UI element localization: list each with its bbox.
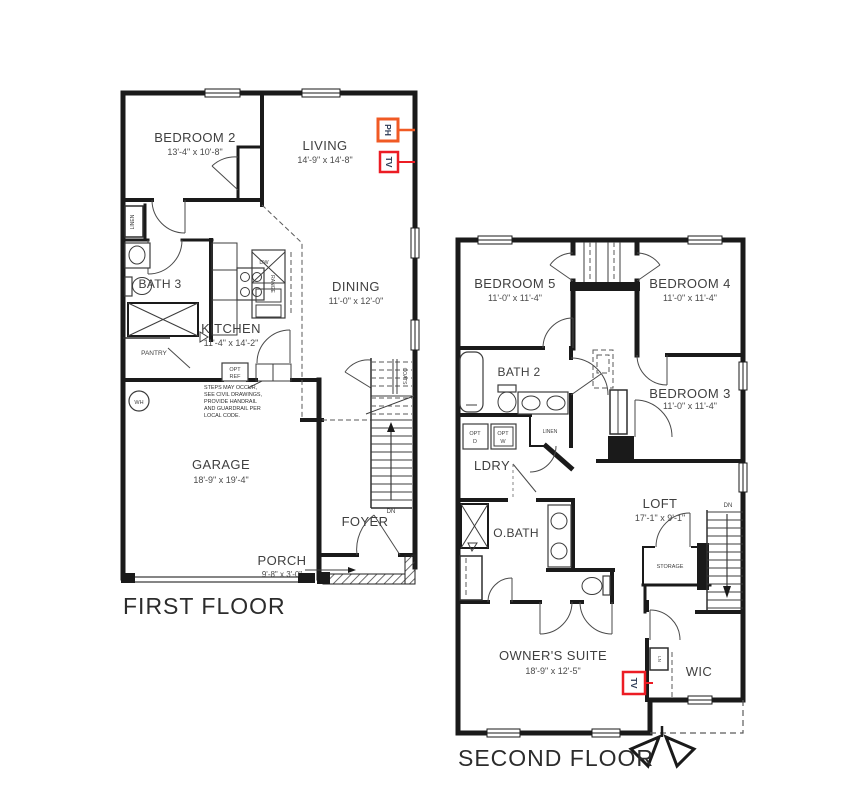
label-wh: WH: [134, 400, 143, 406]
dims-garage: 18'-9" x 19'-4": [193, 475, 248, 485]
label-opt-d-1: OPT: [469, 431, 481, 437]
label-pantry: PANTRY: [141, 350, 167, 357]
tv-marker-label-sf: TV: [629, 678, 639, 689]
first-floor-title: FIRST FLOOR: [123, 593, 286, 619]
ph-marker-label: PH: [383, 124, 393, 136]
first-floor-bath3-fixtures: [125, 243, 208, 342]
second-floor-stair-shaft: [570, 240, 640, 355]
tv-marker-first-floor: TV: [380, 152, 415, 172]
label-opt-ref-2: REF: [230, 374, 242, 380]
label-coats: COATS: [401, 368, 407, 386]
label-living: LIVING: [302, 138, 347, 153]
label-garage: GARAGE: [192, 457, 250, 472]
dims-kitchen: 11'-4" x 14'-2": [204, 338, 259, 348]
label-bedroom5: BEDROOM 5: [474, 276, 556, 291]
label-ln: LN: [657, 656, 662, 662]
label-dn-sf: DN: [724, 503, 733, 509]
label-owners-suite: OWNER'S SUITE: [499, 648, 607, 663]
dims-living: 14'-9" x 14'-8": [297, 155, 352, 165]
second-floor-doors: [488, 253, 690, 640]
label-kitchen: KITCHEN: [201, 321, 261, 336]
first-floor-kitchen-fixtures: [212, 243, 291, 388]
dims-loft: 17'-1" x 9'-1": [635, 513, 685, 523]
dims-bedroom4: 11'-0" x 11'-4": [663, 293, 717, 303]
label-loft: LOFT: [643, 496, 678, 511]
svg-text:STEPS MAY OCCUR,: STEPS MAY OCCUR,: [204, 385, 258, 391]
dims-bedroom2: 13'-4" x 10'-8": [167, 147, 222, 157]
label-range: RANGE: [269, 275, 275, 293]
dims-dining: 11'-0" x 12'-0": [329, 296, 384, 306]
tv-marker-label-ff: TV: [384, 157, 394, 168]
label-ldry: LDRY: [474, 458, 510, 473]
second-floor-plan: TV BEDROOM 5 11'-0" x 11'-4" BEDROOM 4 1…: [458, 236, 747, 771]
label-storage: STORAGE: [657, 564, 684, 570]
svg-text:LOCAL CODE.: LOCAL CODE.: [204, 413, 240, 419]
label-opt-w-2: W: [500, 439, 506, 445]
dims-bedroom5: 11'-0" x 11'-4": [488, 293, 542, 303]
label-bedroom2: BEDROOM 2: [154, 130, 236, 145]
label-obath: O.BATH: [493, 526, 539, 540]
label-opt-ref-1: OPT: [229, 367, 241, 373]
floor-plan-page: PH TV BEDROOM 2 13'-4" x 10'-8" LIVING 1…: [0, 0, 850, 811]
label-opt-d-2: D: [473, 439, 477, 445]
second-floor-bath2-fixtures: [460, 352, 568, 414]
label-bath3: BATH 3: [139, 277, 182, 291]
label-wic: WIC: [686, 664, 712, 679]
label-dw: DW: [259, 260, 269, 266]
steps-note: STEPS MAY OCCUR, SEE CIVIL DRAWINGS, PRO…: [204, 385, 263, 419]
second-floor-title: SECOND FLOOR: [458, 745, 654, 771]
first-floor-plan: PH TV BEDROOM 2 13'-4" x 10'-8" LIVING 1…: [121, 89, 419, 619]
label-dining: DINING: [332, 279, 380, 294]
dims-owners-suite: 18'-9" x 12'-5": [525, 666, 580, 676]
label-bath2: BATH 2: [498, 365, 541, 379]
label-opt-w-1: OPT: [497, 431, 509, 437]
second-floor-stairs: [643, 510, 743, 610]
label-dn-ff: DN: [387, 509, 396, 515]
svg-text:PROVIDE HANDRAIL: PROVIDE HANDRAIL: [204, 399, 257, 405]
dims-porch: 9'-8" x 3'-0": [262, 570, 302, 579]
label-linen-sf: LINEN: [543, 429, 558, 435]
svg-text:AND GUARDRAIL PER: AND GUARDRAIL PER: [204, 406, 261, 412]
label-bedroom3: BEDROOM 3: [649, 386, 731, 401]
floor-plans-svg: PH TV BEDROOM 2 13'-4" x 10'-8" LIVING 1…: [0, 0, 850, 811]
label-linen-ff: LINEN: [130, 214, 136, 229]
label-foyer: FOYER: [342, 514, 389, 529]
label-bedroom4: BEDROOM 4: [649, 276, 731, 291]
ph-marker: PH: [378, 119, 415, 141]
svg-text:SEE CIVIL DRAWINGS,: SEE CIVIL DRAWINGS,: [204, 392, 263, 398]
dims-bedroom3: 11'-0" x 11'-4": [663, 401, 717, 411]
label-porch: PORCH: [258, 553, 307, 568]
second-floor-obath-fixtures: [460, 504, 610, 600]
